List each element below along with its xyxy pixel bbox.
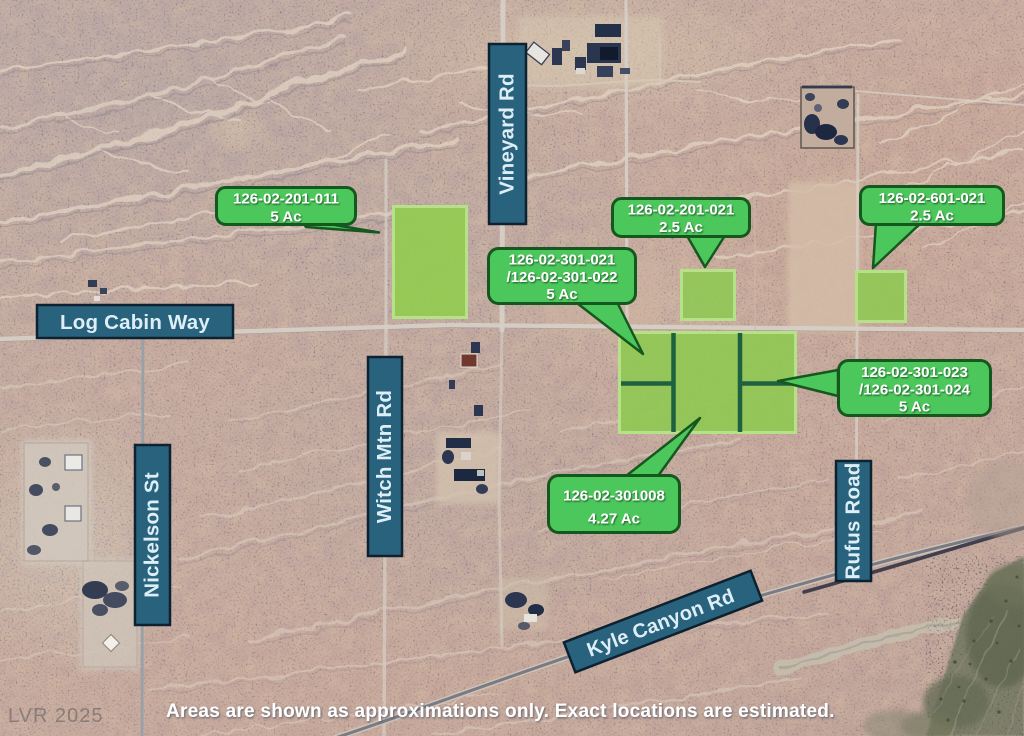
svg-text:Rufus Road: Rufus Road [842,462,865,579]
svg-text:126-02-601-021: 126-02-601-021 [879,190,986,207]
svg-text:Log Cabin Way: Log Cabin Way [60,311,210,334]
svg-text:126-02-301-021: 126-02-301-021 [509,252,616,269]
svg-text:Nickelson St: Nickelson St [141,472,164,597]
svg-text:4.27 Ac: 4.27 Ac [588,511,640,528]
svg-text:Areas are shown as approximati: Areas are shown as approximations only. … [166,701,835,722]
svg-text:126-02-201-011: 126-02-201-011 [233,191,339,208]
svg-text:2.5 Ac: 2.5 Ac [659,219,703,236]
svg-text:Vineyard Rd: Vineyard Rd [496,73,519,194]
svg-text:2.5 Ac: 2.5 Ac [910,208,954,225]
svg-text:/126-02-301-022: /126-02-301-022 [507,269,618,286]
svg-text:LVR 2025: LVR 2025 [8,705,103,727]
svg-text:126-02-301008: 126-02-301008 [563,488,665,505]
svg-text:5 Ac: 5 Ac [899,399,930,416]
svg-text:Witch Mtn Rd: Witch Mtn Rd [373,390,396,523]
svg-text:5 Ac: 5 Ac [546,286,577,303]
svg-text:126-02-301-023: 126-02-301-023 [861,364,968,381]
svg-text:126-02-201-021: 126-02-201-021 [628,202,735,219]
svg-text:/126-02-301-024: /126-02-301-024 [859,382,971,399]
svg-text:5 Ac: 5 Ac [270,209,301,226]
